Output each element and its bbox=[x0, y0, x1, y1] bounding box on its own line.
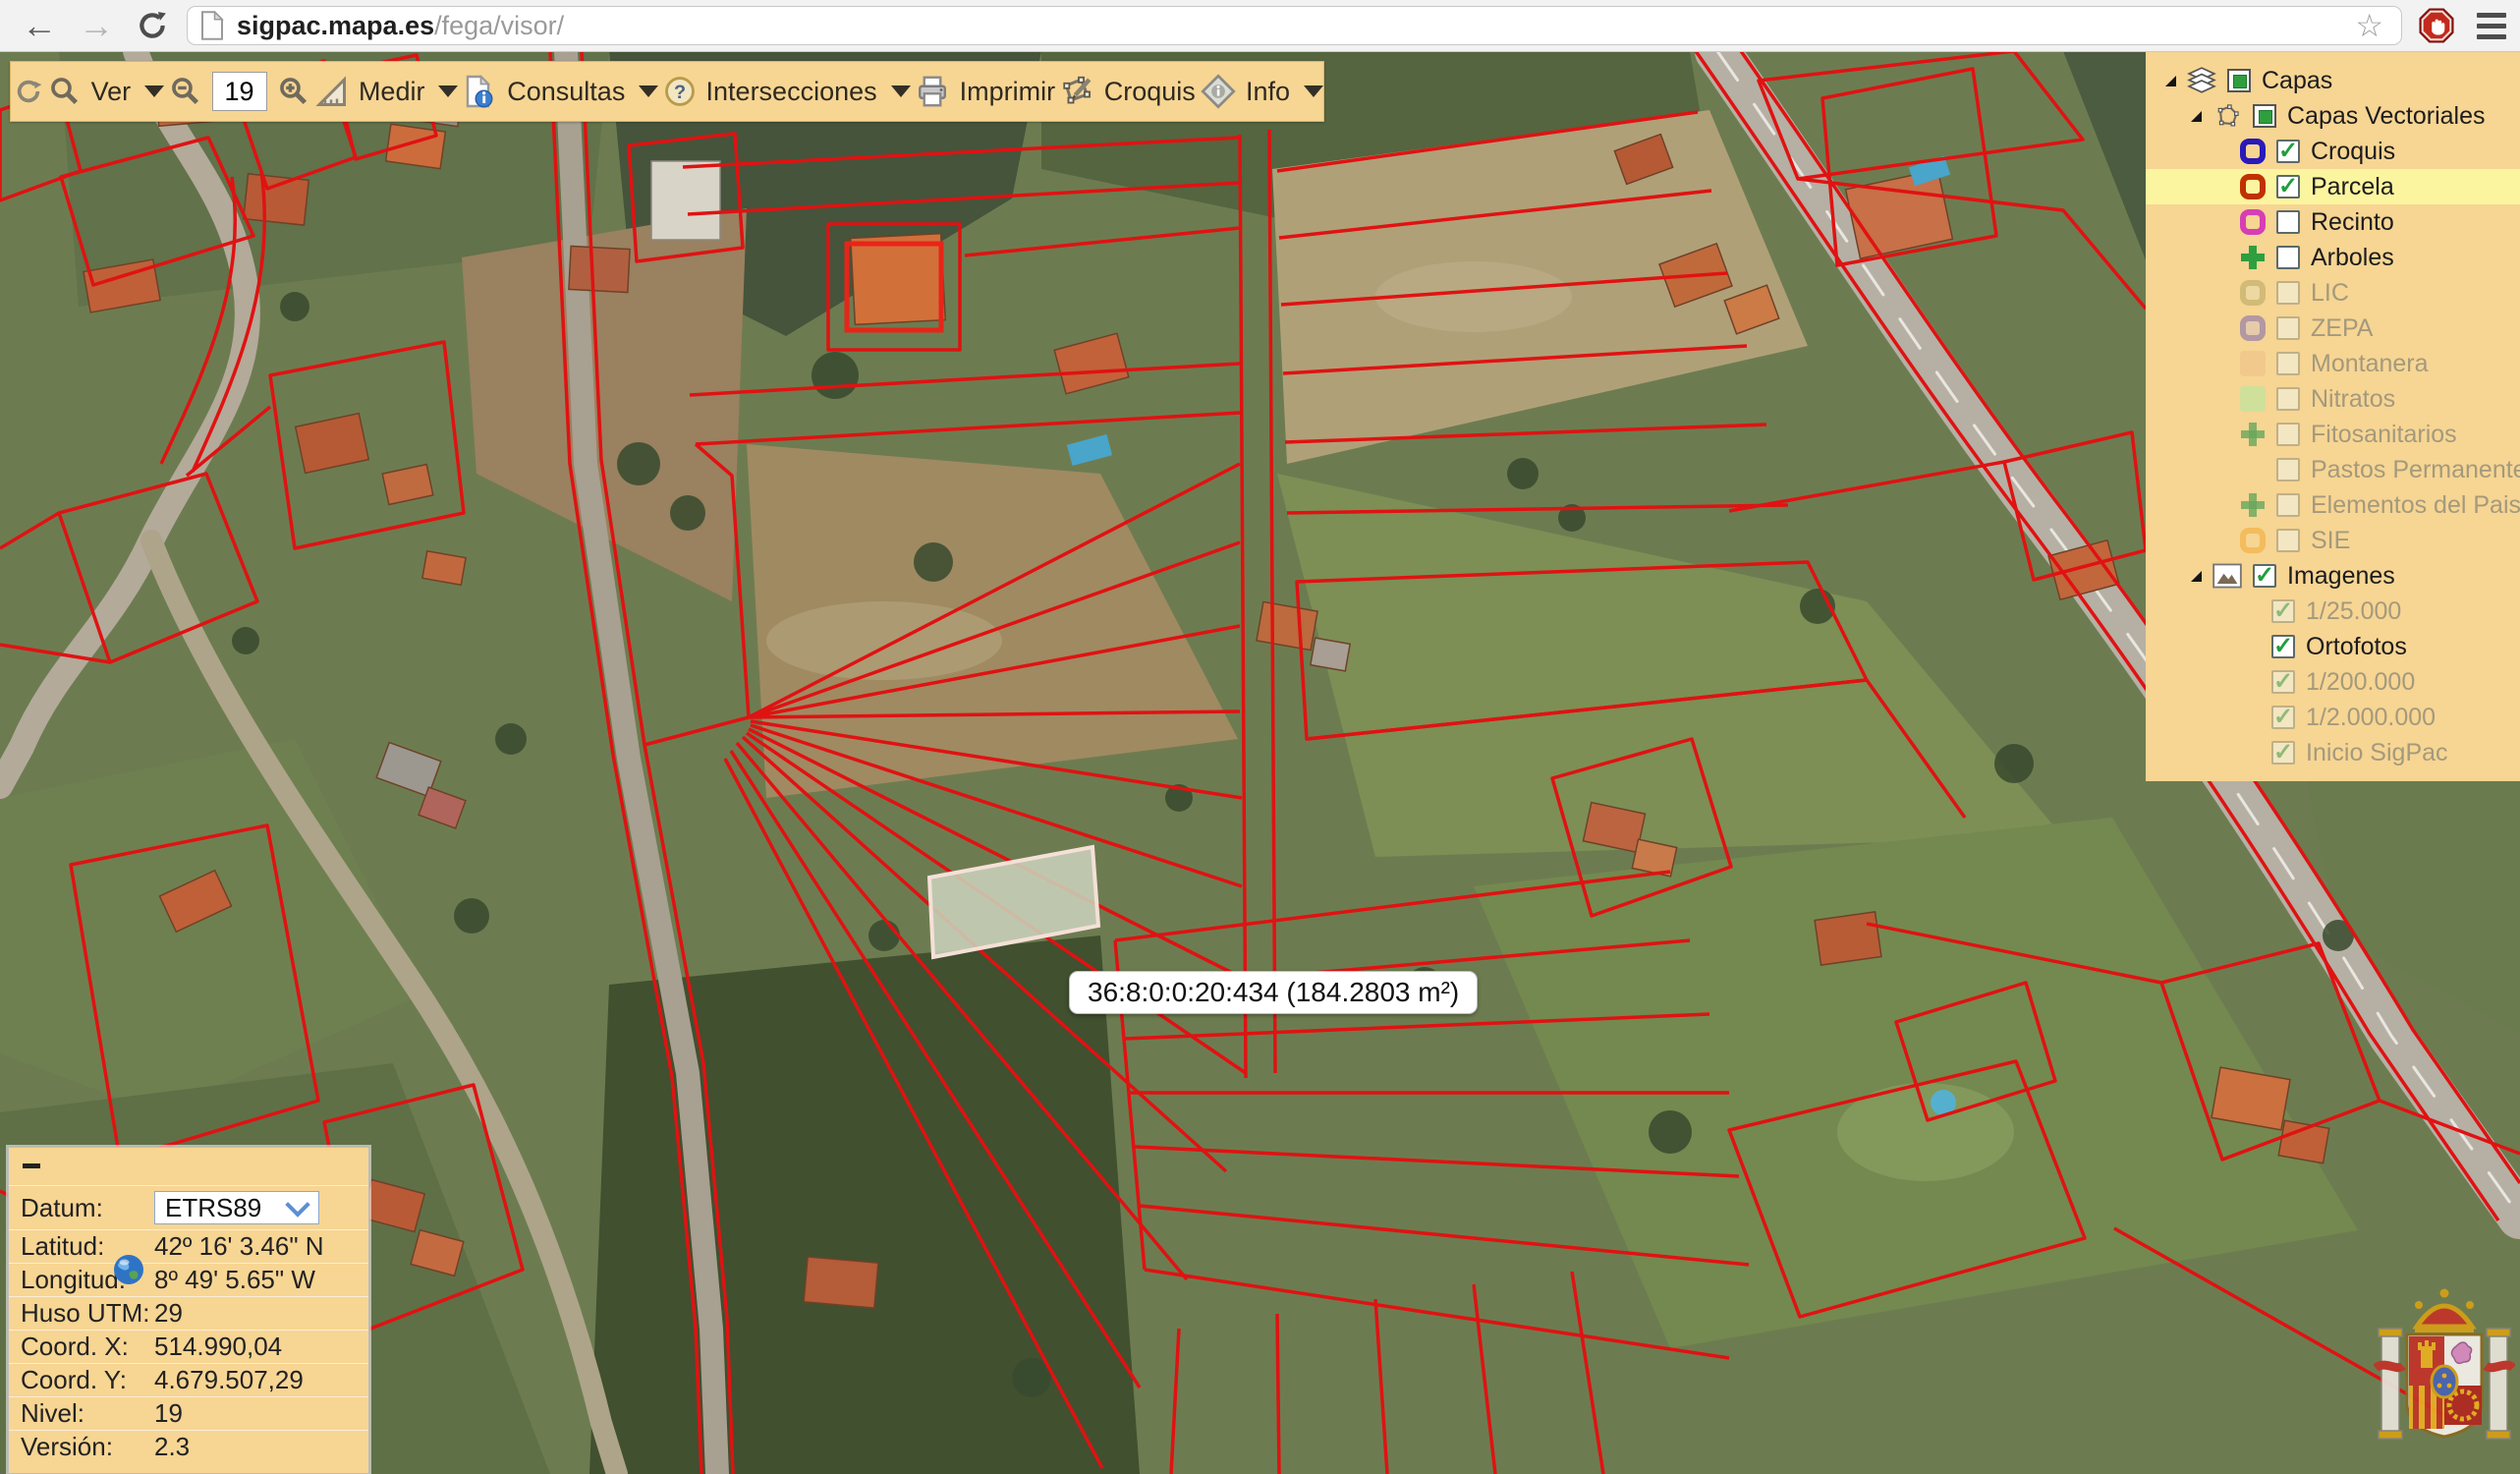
layer-label: Inicio SigPac bbox=[2306, 739, 2448, 767]
imprimir-button[interactable]: Imprimir bbox=[915, 74, 1055, 109]
printer-icon bbox=[915, 74, 950, 109]
layer-checkbox[interactable] bbox=[2276, 529, 2300, 552]
layer-checkbox[interactable] bbox=[2276, 281, 2300, 305]
croquis-button[interactable]: Croquis bbox=[1059, 74, 1196, 109]
info-label: Info bbox=[1246, 77, 1290, 107]
coord-y-value: 4.679.507,29 bbox=[154, 1365, 368, 1395]
utm-zone-row: Huso UTM: 29 bbox=[9, 1296, 368, 1330]
zoom-in-button[interactable] bbox=[277, 75, 310, 108]
expand-triangle-icon[interactable] bbox=[2191, 111, 2202, 122]
bookmark-star-icon[interactable]: ☆ bbox=[2355, 7, 2383, 44]
layer-checkbox[interactable] bbox=[2276, 175, 2300, 198]
ver-label: Ver bbox=[91, 77, 132, 107]
layer-checkbox[interactable] bbox=[2271, 706, 2295, 729]
zoom-out-icon bbox=[169, 75, 202, 108]
layer-label: 1/25.000 bbox=[2306, 597, 2401, 626]
select-chevron-icon bbox=[285, 1192, 309, 1217]
magnifier-icon bbox=[48, 75, 82, 108]
level-label: Nivel: bbox=[9, 1398, 154, 1429]
browser-chrome: ← → sigpac.mapa.es/fega/visor/ ☆ bbox=[0, 0, 2520, 52]
url-domain: sigpac.mapa.es bbox=[237, 11, 434, 40]
coord-x-label: Coord. X: bbox=[9, 1332, 154, 1362]
layer-label: Montanera bbox=[2311, 350, 2429, 378]
map-toolbar: Ver bbox=[10, 61, 1324, 122]
layer-label: 1/200.000 bbox=[2306, 668, 2415, 697]
consultas-button[interactable]: Consultas bbox=[462, 74, 658, 109]
layer-row-arboles[interactable]: Arboles bbox=[2146, 240, 2520, 275]
images-group-label: Imagenes bbox=[2287, 562, 2395, 591]
layer-row-fitosanitarios[interactable]: Fitosanitarios bbox=[2146, 417, 2520, 452]
layer-checkbox[interactable] bbox=[2276, 210, 2300, 234]
collapse-panel-button[interactable] bbox=[9, 1148, 368, 1185]
globe-icon bbox=[111, 1252, 146, 1294]
layer-label: Parcela bbox=[2311, 173, 2394, 201]
level-value: 19 bbox=[154, 1398, 368, 1429]
datum-select[interactable]: ETRS89 bbox=[154, 1191, 319, 1224]
layer-swatch bbox=[2240, 209, 2266, 235]
layer-row-zepa[interactable]: ZEPA bbox=[2146, 311, 2520, 346]
expand-triangle-icon[interactable] bbox=[2191, 571, 2202, 582]
layer-swatch bbox=[2240, 315, 2266, 341]
layer-row-inicio-sigpac[interactable]: Inicio SigPac bbox=[2146, 735, 2520, 770]
layer-swatch bbox=[2240, 492, 2266, 518]
layer-swatch bbox=[2240, 280, 2266, 306]
layer-row-parcela[interactable]: Parcela bbox=[2146, 169, 2520, 204]
layer-checkbox[interactable] bbox=[2253, 564, 2276, 588]
layers-stack-icon bbox=[2187, 67, 2216, 94]
parcel-tooltip: 36:8:0:0:20:434 (184.2803 m²) bbox=[1069, 971, 1478, 1014]
layer-label: LIC bbox=[2311, 279, 2349, 308]
layer-checkbox[interactable] bbox=[2271, 670, 2295, 694]
layer-label: Ortofotos bbox=[2306, 633, 2407, 661]
chevron-down-icon bbox=[438, 85, 458, 97]
layer-swatch bbox=[2240, 422, 2266, 447]
zoom-out-button[interactable] bbox=[169, 75, 202, 108]
stop-hand-extension-icon[interactable] bbox=[2418, 7, 2455, 44]
layer-label: Elementos del Paisaje bbox=[2311, 491, 2520, 520]
zoom-level-input[interactable] bbox=[212, 72, 267, 111]
version-label: Versión: bbox=[9, 1432, 154, 1462]
reload-icon bbox=[136, 9, 169, 42]
forward-button[interactable]: → bbox=[79, 8, 114, 43]
layers-root-row[interactable]: Capas bbox=[2146, 63, 2520, 98]
reload-button[interactable] bbox=[136, 9, 169, 42]
layer-row-croquis[interactable]: Croquis bbox=[2146, 134, 2520, 169]
latitude-value: 42º 16' 3.46" N bbox=[154, 1231, 368, 1262]
layer-checkbox[interactable] bbox=[2276, 458, 2300, 482]
layer-row-elementos-del-paisaje[interactable]: Elementos del Paisaje bbox=[2146, 487, 2520, 523]
utm-zone-value: 29 bbox=[154, 1298, 368, 1329]
layer-row-ortofotos[interactable]: Ortofotos bbox=[2146, 629, 2520, 664]
layer-label: SIE bbox=[2311, 527, 2350, 555]
layer-row-1-25000[interactable]: 1/25.000 bbox=[2146, 594, 2520, 629]
layer-checkbox[interactable] bbox=[2276, 352, 2300, 375]
intersecciones-label: Intersecciones bbox=[706, 77, 877, 107]
browser-menu-icon[interactable] bbox=[2477, 13, 2506, 39]
coord-x-row: Coord. X: 514.990,04 bbox=[9, 1330, 368, 1363]
layer-visibility-indicator[interactable] bbox=[2227, 69, 2251, 92]
layer-checkbox[interactable] bbox=[2276, 387, 2300, 411]
layer-checkbox[interactable] bbox=[2276, 423, 2300, 446]
sigpac-viewer-screen: ← → sigpac.mapa.es/fega/visor/ ☆ bbox=[0, 0, 2520, 1474]
url-text: sigpac.mapa.es/fega/visor/ bbox=[237, 11, 2355, 41]
intersecciones-button[interactable]: ? Intersecciones bbox=[663, 75, 911, 108]
layer-row-recinto[interactable]: Recinto bbox=[2146, 204, 2520, 240]
layer-checkbox[interactable] bbox=[2271, 635, 2295, 658]
ver-button[interactable]: Ver bbox=[48, 75, 165, 108]
refresh-button[interactable] bbox=[13, 76, 44, 107]
datum-value: ETRS89 bbox=[155, 1193, 289, 1223]
expand-triangle-icon[interactable] bbox=[2165, 76, 2176, 86]
spain-coat-of-arms bbox=[2374, 1274, 2515, 1465]
consultas-label: Consultas bbox=[507, 77, 625, 107]
layer-label: Pastos Permanentes bbox=[2311, 456, 2520, 484]
layer-visibility-indicator[interactable] bbox=[2253, 104, 2276, 128]
svg-text:?: ? bbox=[673, 82, 685, 103]
question-circle-icon: ? bbox=[663, 75, 697, 108]
layer-checkbox[interactable] bbox=[2276, 246, 2300, 269]
info-button[interactable]: Info bbox=[1201, 74, 1323, 109]
medir-label: Medir bbox=[359, 77, 425, 107]
layer-row-nitratos[interactable]: Nitratos bbox=[2146, 381, 2520, 417]
layer-swatch bbox=[2240, 139, 2266, 164]
layer-swatch bbox=[2240, 351, 2266, 376]
chevron-down-icon bbox=[1304, 85, 1323, 97]
layer-checkbox[interactable] bbox=[2276, 493, 2300, 517]
layer-swatch bbox=[2240, 245, 2266, 270]
level-row: Nivel: 19 bbox=[9, 1396, 368, 1430]
layer-checkbox[interactable] bbox=[2271, 599, 2295, 623]
vector-polygon-icon bbox=[2212, 102, 2242, 130]
back-button[interactable]: ← bbox=[22, 8, 57, 43]
chevron-down-icon bbox=[891, 85, 911, 97]
layer-row-sie[interactable]: SIE bbox=[2146, 523, 2520, 558]
coord-y-label: Coord. Y: bbox=[9, 1365, 154, 1395]
layer-label: Recinto bbox=[2311, 208, 2394, 237]
stop-hand-icon bbox=[2418, 7, 2455, 44]
layer-swatch bbox=[2240, 528, 2266, 553]
refresh-icon bbox=[13, 76, 44, 107]
coordinates-panel: Datum: ETRS89 Latitud: 42º 16' 3.46" N L… bbox=[8, 1147, 369, 1474]
chevron-down-icon bbox=[144, 85, 164, 97]
vector-layers-group-label: Capas Vectoriales bbox=[2287, 102, 2486, 131]
layer-checkbox[interactable] bbox=[2276, 140, 2300, 163]
layer-checkbox[interactable] bbox=[2271, 741, 2295, 765]
page-icon bbox=[199, 11, 225, 40]
chevron-down-icon bbox=[639, 85, 658, 97]
layer-row-montanera[interactable]: Montanera bbox=[2146, 346, 2520, 381]
layer-row-pastos-permanentes[interactable]: Pastos Permanentes bbox=[2146, 452, 2520, 487]
layer-checkbox[interactable] bbox=[2276, 316, 2300, 340]
layer-row-1-200000[interactable]: 1/200.000 bbox=[2146, 664, 2520, 700]
aerial-map-canvas[interactable] bbox=[0, 51, 2520, 1474]
imprimir-label: Imprimir bbox=[960, 77, 1055, 107]
datum-row: Datum: ETRS89 bbox=[9, 1185, 368, 1229]
croquis-label: Croquis bbox=[1104, 77, 1196, 107]
datum-label: Datum: bbox=[9, 1193, 154, 1223]
coord-y-row: Coord. Y: 4.679.507,29 bbox=[9, 1363, 368, 1396]
layer-label: ZEPA bbox=[2311, 314, 2373, 343]
document-info-icon bbox=[462, 74, 497, 109]
latitude-row: Latitud: 42º 16' 3.46" N bbox=[9, 1229, 368, 1263]
coord-x-value: 514.990,04 bbox=[154, 1332, 368, 1362]
version-row: Versión: 2.3 bbox=[9, 1430, 368, 1463]
layer-swatch bbox=[2240, 174, 2266, 199]
layer-label: 1/2.000.000 bbox=[2306, 704, 2436, 732]
vector-layers-group-row[interactable]: Capas Vectoriales bbox=[2146, 98, 2520, 134]
layer-row-lic[interactable]: LIC bbox=[2146, 275, 2520, 311]
images-group-row[interactable]: Imagenes bbox=[2146, 558, 2520, 594]
layer-label: Croquis bbox=[2311, 138, 2395, 166]
zoom-in-icon bbox=[277, 75, 310, 108]
ruler-icon bbox=[313, 74, 349, 109]
longitude-row: Longitud: 8º 49' 5.65" W bbox=[9, 1263, 368, 1296]
medir-button[interactable]: Medir bbox=[313, 74, 459, 109]
map-viewport: 36:8:0:0:20:434 (184.2803 m²) Ver bbox=[0, 51, 2520, 1474]
longitude-value: 8º 49' 5.65" W bbox=[154, 1265, 368, 1295]
image-icon bbox=[2212, 563, 2242, 589]
layers-root-label: Capas bbox=[2262, 67, 2332, 95]
layer-label: Nitratos bbox=[2311, 385, 2395, 414]
utm-zone-label: Huso UTM: bbox=[9, 1298, 154, 1329]
sketch-polygon-icon bbox=[1059, 74, 1094, 109]
url-bar[interactable]: sigpac.mapa.es/fega/visor/ ☆ bbox=[187, 6, 2402, 45]
url-path: /fega/visor/ bbox=[434, 11, 564, 40]
info-diamond-icon bbox=[1201, 74, 1236, 109]
layer-swatch bbox=[2240, 386, 2266, 412]
layer-row-1-2000000[interactable]: 1/2.000.000 bbox=[2146, 700, 2520, 735]
version-value: 2.3 bbox=[154, 1432, 368, 1462]
layers-panel: Capas Capas Vectoriales Croquis bbox=[2146, 51, 2520, 781]
layer-label: Arboles bbox=[2311, 244, 2394, 272]
layer-label: Fitosanitarios bbox=[2311, 421, 2457, 449]
